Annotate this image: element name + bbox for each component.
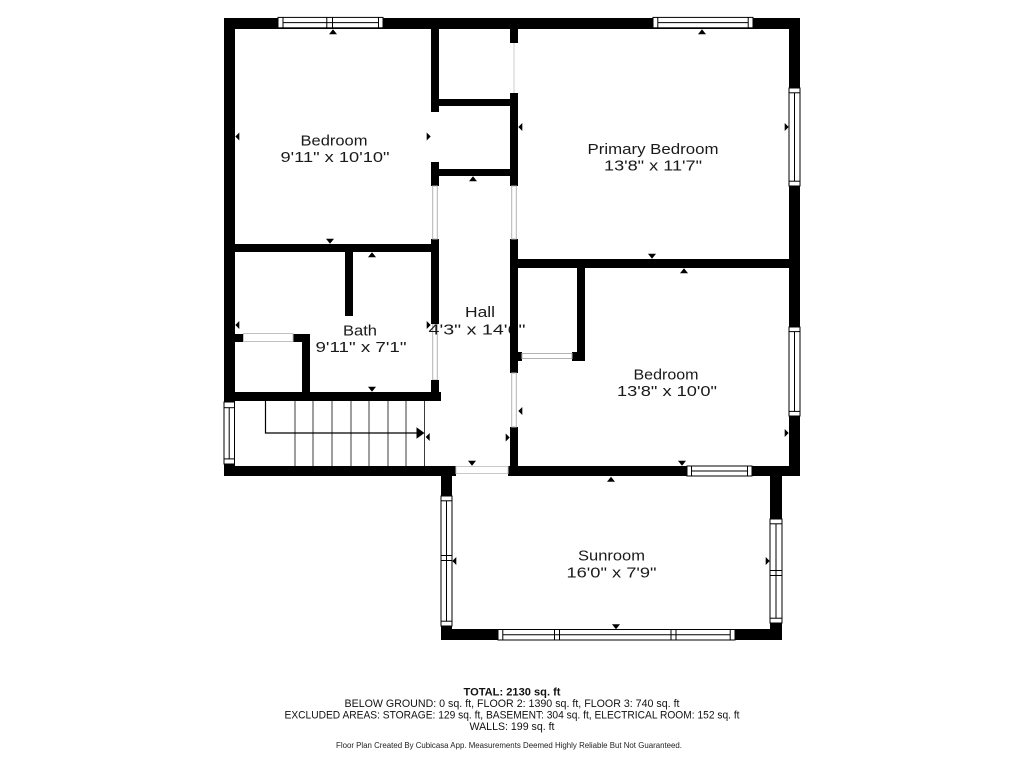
svg-text:9'11" x 7'1": 9'11" x 7'1"	[316, 339, 407, 356]
svg-text:16'0" x 7'9": 16'0" x 7'9"	[567, 565, 657, 582]
svg-text:13'8" x 11'7": 13'8" x 11'7"	[604, 158, 702, 175]
svg-text:Bedroom: Bedroom	[634, 367, 699, 384]
svg-text:Bedroom: Bedroom	[301, 133, 368, 150]
svg-text:13'8" x 10'0": 13'8" x 10'0"	[617, 383, 717, 400]
svg-text:9'11" x 10'10": 9'11" x 10'10"	[281, 149, 390, 166]
svg-text:Sunroom: Sunroom	[578, 548, 645, 565]
svg-text:BELOW GROUND: 0 sq. ft, FLOOR: BELOW GROUND: 0 sq. ft, FLOOR 2: 1390 sq…	[345, 698, 680, 710]
svg-text:Floor Plan Created By Cubicasa: Floor Plan Created By Cubicasa App. Meas…	[336, 741, 682, 750]
svg-text:Hall: Hall	[465, 304, 495, 321]
svg-text:WALLS: 199 sq. ft: WALLS: 199 sq. ft	[470, 721, 555, 733]
svg-text:Primary Bedroom: Primary Bedroom	[588, 141, 719, 158]
svg-text:EXCLUDED AREAS: STORAGE: 129 s: EXCLUDED AREAS: STORAGE: 129 sq. ft, BAS…	[285, 710, 740, 722]
svg-text:TOTAL: 2130 sq. ft: TOTAL: 2130 sq. ft	[464, 687, 561, 699]
svg-text:Bath: Bath	[343, 323, 377, 340]
